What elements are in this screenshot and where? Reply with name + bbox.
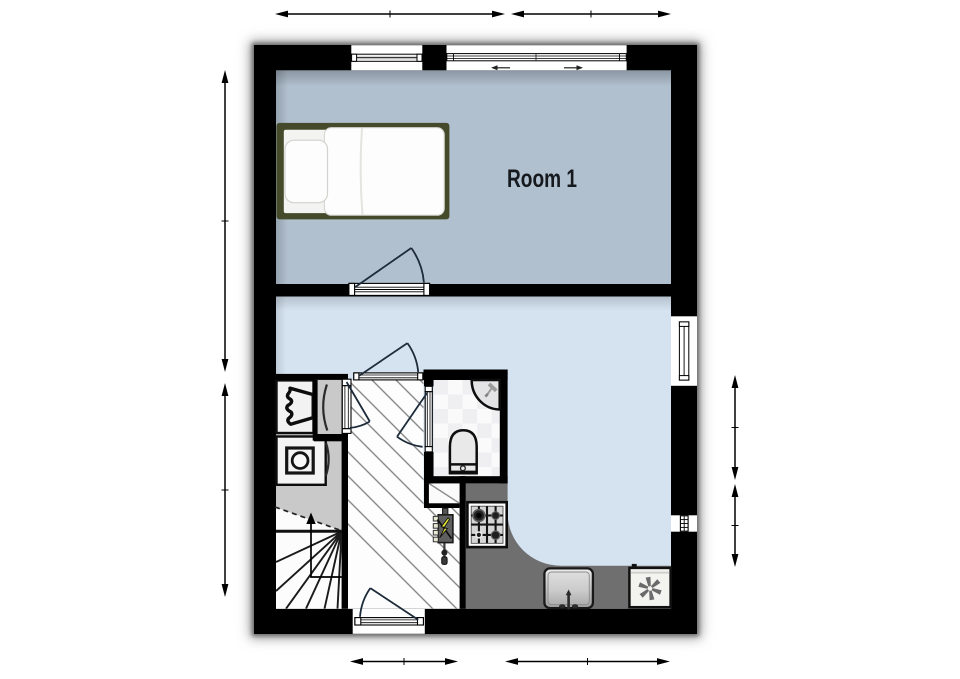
svg-text:Room 1: Room 1 [507,165,577,193]
